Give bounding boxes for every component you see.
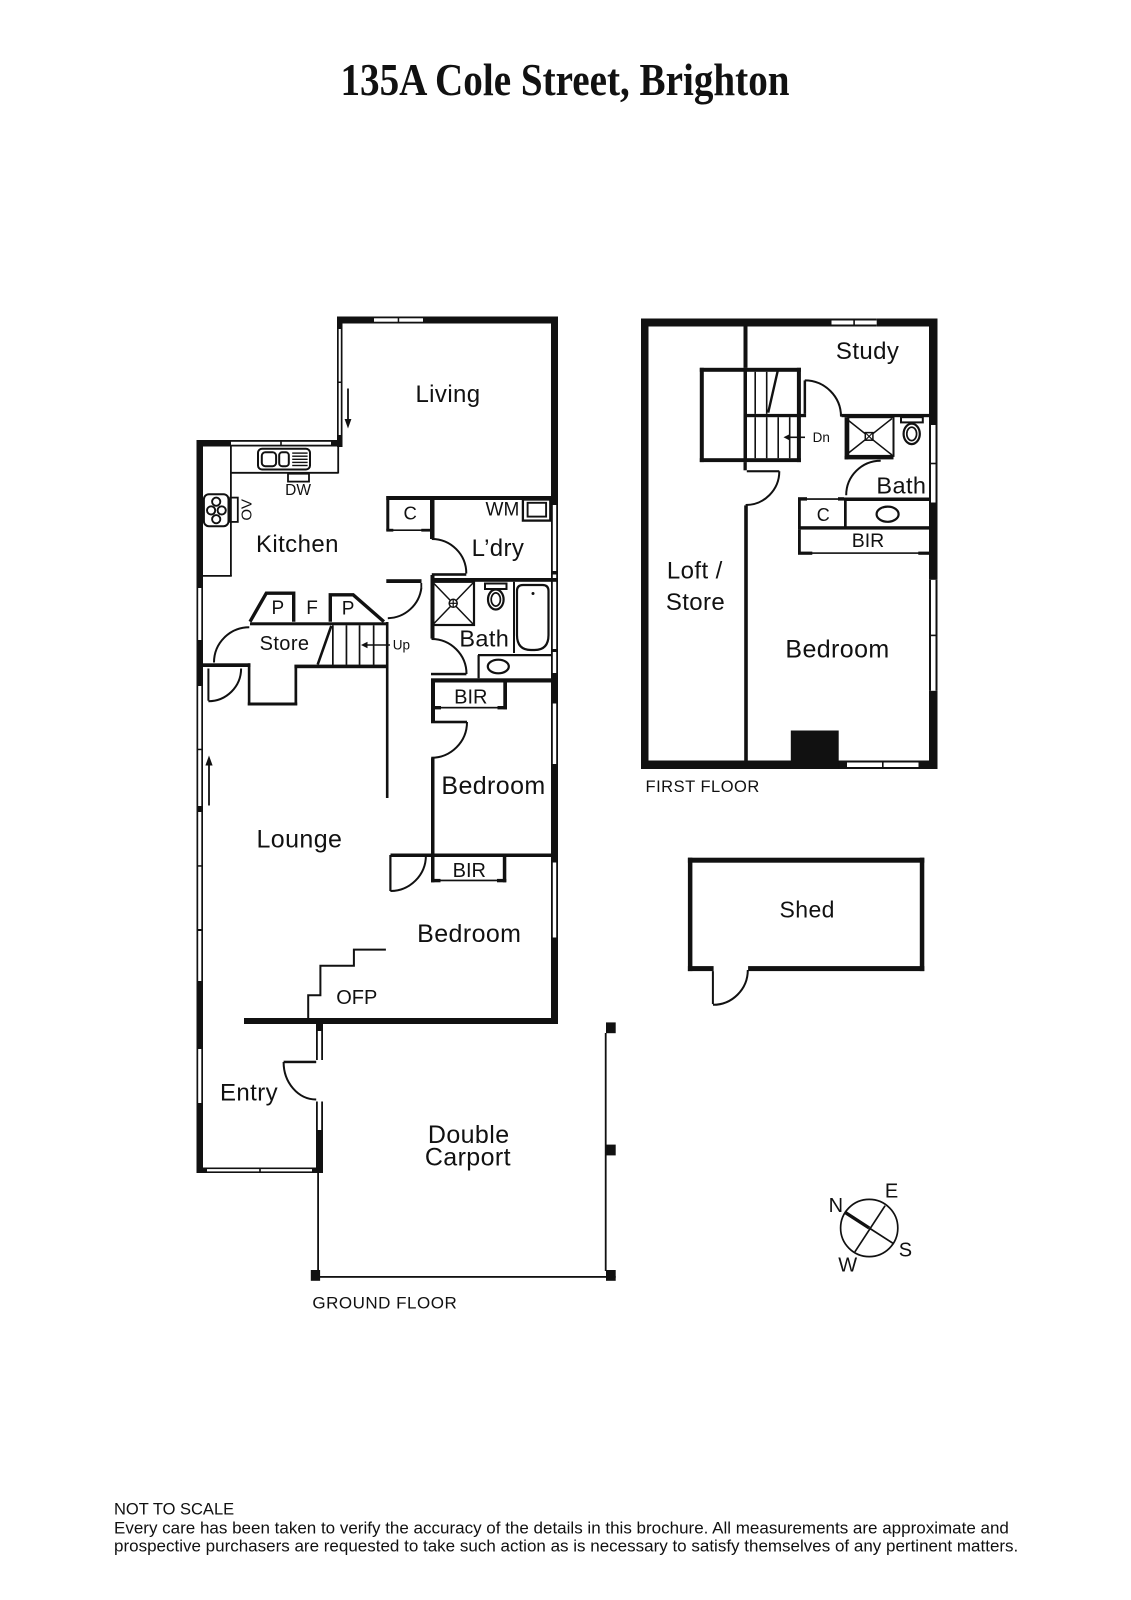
svg-text:FIRST FLOOR: FIRST FLOOR [646, 778, 760, 796]
svg-text:C: C [817, 505, 830, 525]
svg-text:Study: Study [836, 338, 899, 365]
svg-text:Carport: Carport [425, 1144, 511, 1172]
svg-text:P: P [342, 599, 355, 620]
svg-text:OV: OV [239, 499, 256, 521]
svg-text:Every care has been taken to v: Every care has been taken to verify the … [114, 1519, 1009, 1538]
svg-text:Bath: Bath [876, 473, 926, 499]
svg-text:W: W [838, 1255, 857, 1277]
svg-text:Up: Up [393, 638, 410, 653]
svg-text:Store: Store [666, 589, 725, 616]
svg-text:P: P [272, 598, 285, 619]
svg-text:Bath: Bath [459, 625, 509, 651]
svg-text:DW: DW [285, 482, 311, 499]
svg-text:BIR: BIR [852, 530, 885, 552]
svg-text:Bedroom: Bedroom [441, 772, 545, 800]
svg-text:N: N [829, 1195, 843, 1217]
svg-text:135A Cole Street, Brighton: 135A Cole Street, Brighton [341, 54, 790, 105]
svg-text:S: S [899, 1240, 912, 1262]
svg-text:Entry: Entry [220, 1080, 278, 1107]
svg-text:Lounge: Lounge [256, 826, 342, 854]
svg-text:NOT TO SCALE: NOT TO SCALE [114, 1501, 234, 1519]
svg-text:Bedroom: Bedroom [417, 920, 521, 948]
svg-text:Living: Living [415, 381, 480, 408]
svg-text:WM: WM [486, 500, 520, 521]
svg-text:prospective purchasers are req: prospective purchasers are requested to … [114, 1537, 1018, 1556]
svg-text:L’dry: L’dry [472, 535, 525, 562]
svg-text:BIR: BIR [453, 860, 486, 882]
svg-text:BIR: BIR [454, 686, 487, 708]
svg-text:GROUND FLOOR: GROUND FLOOR [312, 1293, 457, 1312]
svg-text:Store: Store [260, 633, 310, 655]
svg-text:E: E [885, 1181, 898, 1203]
svg-text:C: C [404, 503, 417, 524]
svg-text:Loft /: Loft / [667, 558, 723, 585]
svg-text:F: F [306, 598, 318, 619]
svg-text:OFP: OFP [336, 987, 377, 1009]
svg-text:Kitchen: Kitchen [256, 531, 339, 558]
svg-text:Dn: Dn [813, 430, 830, 445]
svg-text:Shed: Shed [780, 897, 835, 923]
svg-text:Bedroom: Bedroom [785, 635, 889, 663]
